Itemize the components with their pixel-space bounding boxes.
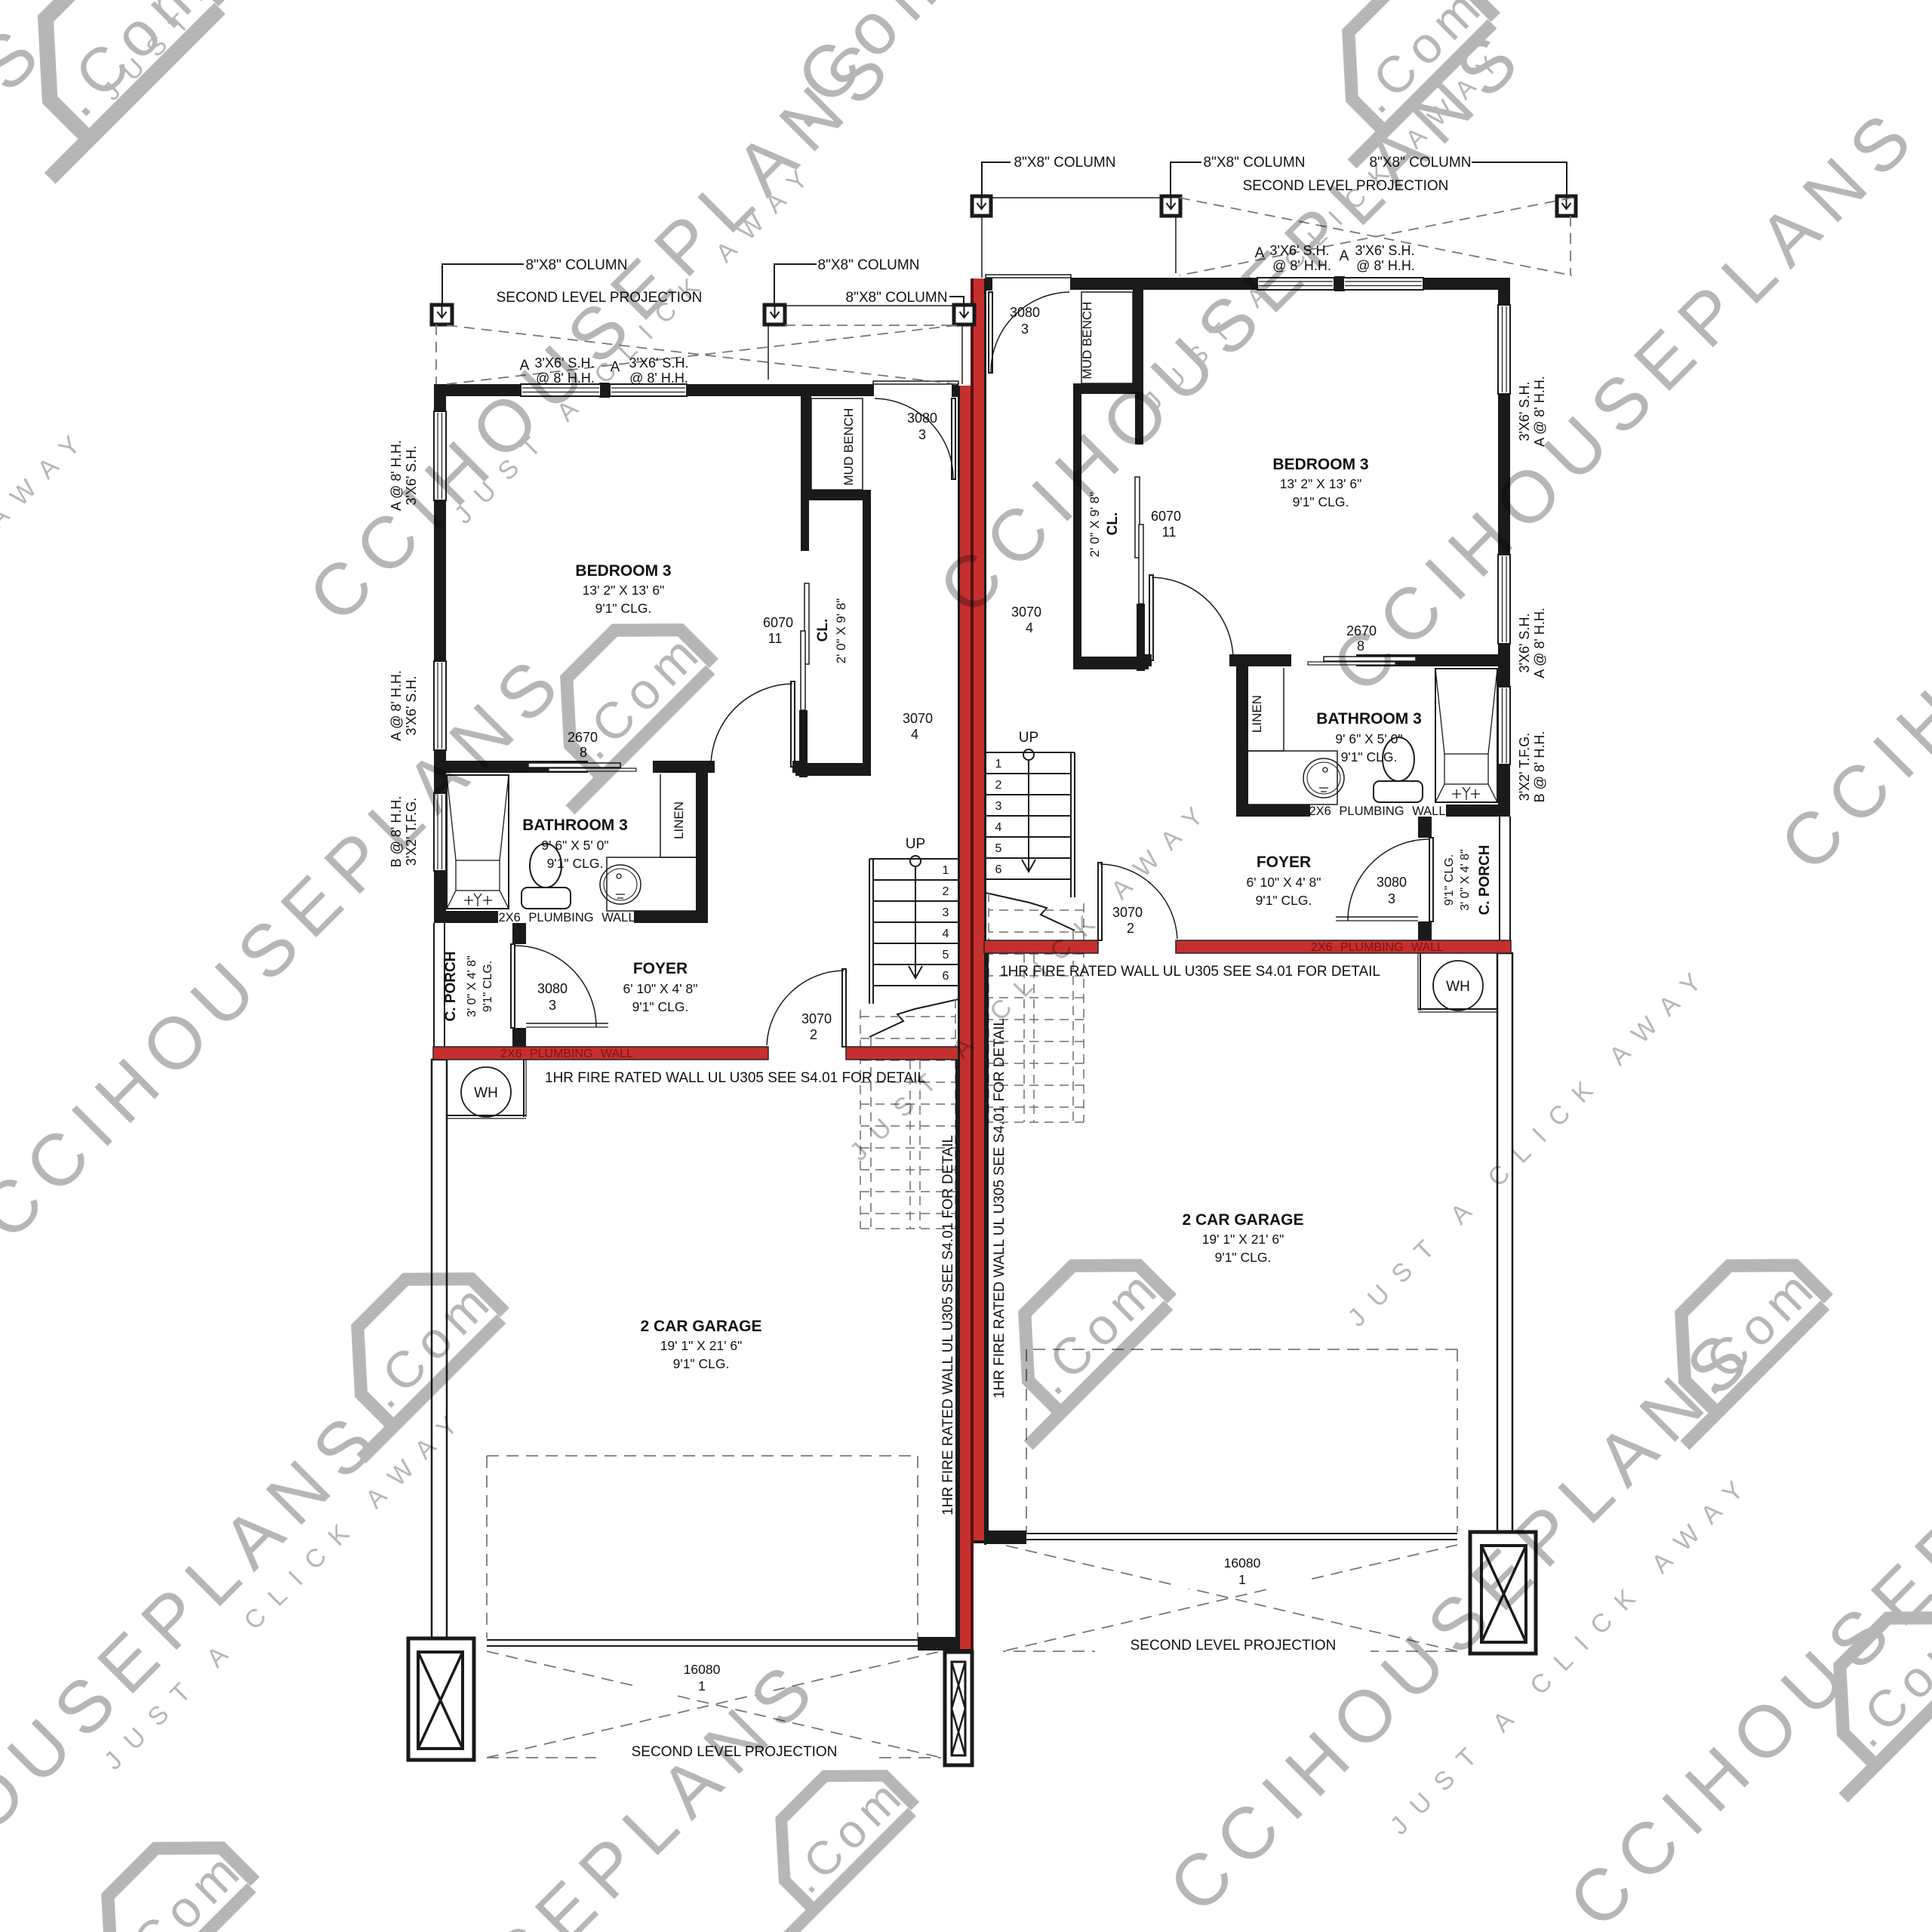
svg-text:3: 3 xyxy=(549,998,556,1013)
svg-text:9' 6" X 5' 0": 9' 6" X 5' 0" xyxy=(541,838,608,853)
svg-text:2X6 PLUMBING WALL: 2X6 PLUMBING WALL xyxy=(498,911,635,924)
svg-text:3'X2' T.F.G.: 3'X2' T.F.G. xyxy=(1517,733,1532,801)
svg-text:3'X6' S.H.: 3'X6' S.H. xyxy=(1517,614,1532,673)
svg-text:4: 4 xyxy=(995,821,1002,834)
svg-text:BATHROOM 3: BATHROOM 3 xyxy=(522,817,628,834)
svg-text:8"X8" COLUMN: 8"X8" COLUMN xyxy=(818,257,920,273)
svg-text:A @ 8' H.H.: A @ 8' H.H. xyxy=(389,670,404,741)
svg-text:3: 3 xyxy=(1388,891,1395,906)
svg-text:FOYER: FOYER xyxy=(633,960,688,977)
svg-text:C. PORCH: C. PORCH xyxy=(1477,845,1493,915)
svg-text:3'X6' S.H.: 3'X6' S.H. xyxy=(1517,382,1532,441)
svg-text:19' 1" X 21' 6": 19' 1" X 21' 6" xyxy=(1202,1232,1284,1247)
svg-text:2: 2 xyxy=(810,1027,817,1042)
svg-text:3' 0" X 4' 8": 3' 0" X 4' 8" xyxy=(1459,849,1472,911)
svg-text:2X6 PLUMBING WALL: 2X6 PLUMBING WALL xyxy=(1309,804,1445,818)
svg-text:SECOND LEVEL PROJECTION: SECOND LEVEL PROJECTION xyxy=(1131,1638,1337,1654)
svg-text:13' 2" X 13' 6": 13' 2" X 13' 6" xyxy=(1280,476,1362,491)
svg-text:9'1" CLG.: 9'1" CLG. xyxy=(1256,893,1312,908)
svg-text:FOYER: FOYER xyxy=(1257,854,1311,871)
svg-text:1: 1 xyxy=(995,758,1002,771)
svg-text:16080: 16080 xyxy=(684,1662,721,1677)
svg-text:9'1" CLG.: 9'1" CLG. xyxy=(673,1356,730,1371)
svg-text:MUD BENCH: MUD BENCH xyxy=(1080,302,1094,380)
svg-text:1: 1 xyxy=(698,1678,706,1694)
svg-text:3: 3 xyxy=(995,800,1002,813)
svg-text:9'1" CLG.: 9'1" CLG. xyxy=(1443,854,1456,906)
svg-text:1HR FIRE RATED WALL UL U305 SE: 1HR FIRE RATED WALL UL U305 SEE S4.01 FO… xyxy=(545,1070,925,1086)
svg-text:6' 10" X 4' 8": 6' 10" X 4' 8" xyxy=(623,981,698,996)
svg-text:B @ 8' H.H.: B @ 8' H.H. xyxy=(1532,731,1547,803)
svg-text:1: 1 xyxy=(943,864,949,877)
svg-text:UP: UP xyxy=(906,836,925,852)
svg-text:11: 11 xyxy=(768,631,783,646)
svg-text:9'1" CLG.: 9'1" CLG. xyxy=(1293,494,1349,509)
svg-text:9'1" CLG.: 9'1" CLG. xyxy=(595,601,652,616)
svg-text:UP: UP xyxy=(1019,730,1038,746)
svg-text:3080: 3080 xyxy=(1377,875,1407,890)
svg-text:2X6 PLUMBING WALL: 2X6 PLUMBING WALL xyxy=(1311,941,1444,954)
svg-text:3: 3 xyxy=(918,427,926,442)
svg-text:4: 4 xyxy=(943,928,949,940)
svg-text:3080: 3080 xyxy=(1010,305,1040,320)
svg-text:2: 2 xyxy=(1127,921,1134,936)
svg-text:8"X8" COLUMN: 8"X8" COLUMN xyxy=(1014,155,1116,171)
svg-text:13' 2" X 13' 6": 13' 2" X 13' 6" xyxy=(583,583,665,598)
svg-text:4: 4 xyxy=(1026,620,1033,635)
svg-text:MUD BENCH: MUD BENCH xyxy=(841,408,856,486)
svg-text:1: 1 xyxy=(1238,1572,1246,1587)
svg-text:3080: 3080 xyxy=(907,411,937,426)
svg-text:3070: 3070 xyxy=(801,1011,832,1026)
svg-text:9'1" CLG.: 9'1" CLG. xyxy=(1215,1250,1272,1265)
svg-text:9'1" CLG.: 9'1" CLG. xyxy=(547,856,604,871)
svg-text:19' 1" X 21' 6": 19' 1" X 21' 6" xyxy=(660,1338,743,1353)
svg-text:2' 0" X 9' 8": 2' 0" X 9' 8" xyxy=(834,598,848,664)
svg-text:C. PORCH: C. PORCH xyxy=(443,952,459,1022)
svg-text:2X6 PLUMBING WALL: 2X6 PLUMBING WALL xyxy=(500,1048,633,1060)
svg-text:1HR FIRE RATED WALL UL U305 SE: 1HR FIRE RATED WALL UL U305 SEE S4.01 FO… xyxy=(992,1018,1008,1398)
svg-text:3' 0" X 4' 8": 3' 0" X 4' 8" xyxy=(466,955,478,1017)
svg-text:@ 8' H.H.: @ 8' H.H. xyxy=(1356,258,1415,273)
svg-text:CL.: CL. xyxy=(815,619,831,642)
svg-text:CL.: CL. xyxy=(1105,512,1121,536)
svg-text:1HR FIRE RATED WALL UL U305 SE: 1HR FIRE RATED WALL UL U305 SEE S4.01 FO… xyxy=(940,1135,956,1515)
svg-text:9'1" CLG.: 9'1" CLG. xyxy=(632,999,689,1014)
svg-text:@ 8' H.H.: @ 8' H.H. xyxy=(629,371,688,386)
svg-text:9' 6" X 5' 0": 9' 6" X 5' 0" xyxy=(1335,731,1402,746)
svg-text:3070: 3070 xyxy=(1011,605,1041,620)
svg-text:LINEN: LINEN xyxy=(1250,695,1264,733)
svg-text:11: 11 xyxy=(1162,525,1177,540)
svg-text:8"X8" COLUMN: 8"X8" COLUMN xyxy=(846,290,948,306)
svg-text:BEDROOM 3: BEDROOM 3 xyxy=(575,562,671,580)
svg-text:6: 6 xyxy=(995,863,1002,876)
svg-text:A @ 8' H.H.: A @ 8' H.H. xyxy=(1532,608,1547,678)
svg-text:2 CAR GARAGE: 2 CAR GARAGE xyxy=(640,1318,761,1335)
svg-text:3: 3 xyxy=(1021,321,1029,337)
svg-text:2 CAR GARAGE: 2 CAR GARAGE xyxy=(1182,1211,1303,1229)
svg-text:5: 5 xyxy=(995,842,1002,855)
svg-text:WH: WH xyxy=(1446,979,1470,995)
svg-text:4: 4 xyxy=(911,727,918,742)
svg-text:LINEN: LINEN xyxy=(672,801,686,839)
svg-text:9'1" CLG.: 9'1" CLG. xyxy=(1341,749,1398,764)
svg-text:6070: 6070 xyxy=(1151,509,1181,524)
svg-text:5: 5 xyxy=(943,949,949,961)
svg-text:6070: 6070 xyxy=(763,615,793,630)
svg-text:9'1" CLG.: 9'1" CLG. xyxy=(481,961,494,1012)
svg-text:3080: 3080 xyxy=(537,981,568,996)
svg-text:16080: 16080 xyxy=(1224,1555,1261,1571)
svg-text:8"X8" COLUMN: 8"X8" COLUMN xyxy=(1204,155,1306,171)
svg-text:BATHROOM 3: BATHROOM 3 xyxy=(1316,710,1422,728)
svg-text:6' 10" X 4' 8": 6' 10" X 4' 8" xyxy=(1247,875,1321,890)
svg-text:6: 6 xyxy=(943,970,949,983)
svg-text:BEDROOM 3: BEDROOM 3 xyxy=(1272,456,1368,473)
svg-text:3070: 3070 xyxy=(903,711,933,726)
svg-text:WH: WH xyxy=(474,1085,498,1101)
svg-text:2: 2 xyxy=(995,779,1002,792)
svg-text:3: 3 xyxy=(943,906,949,919)
svg-text:3'X6' S.H.: 3'X6' S.H. xyxy=(404,676,419,736)
svg-text:2: 2 xyxy=(943,885,949,898)
